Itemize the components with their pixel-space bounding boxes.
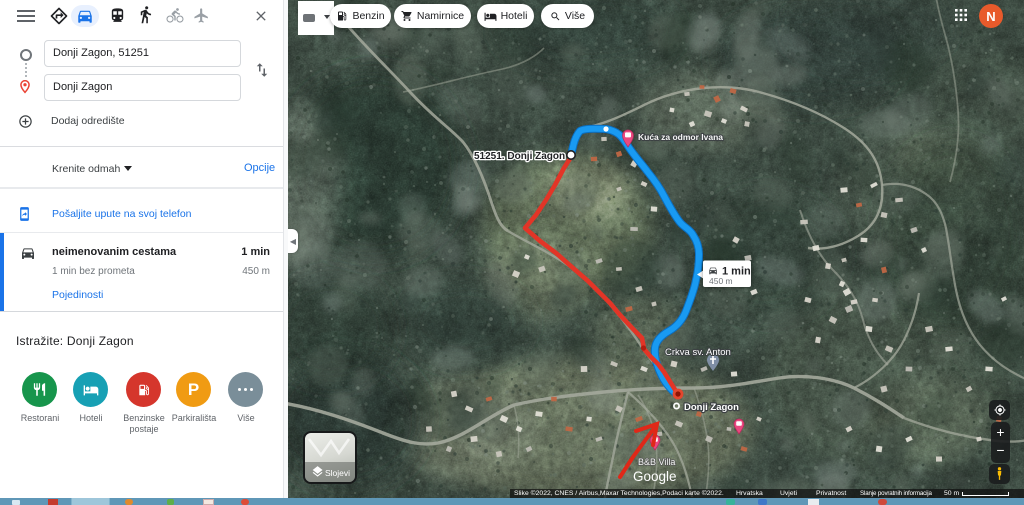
svg-text:Slojevi: Slojevi	[325, 468, 350, 478]
svg-text:Google: Google	[633, 469, 677, 484]
svg-text:51251. Donji Zagon: 51251. Donji Zagon	[474, 151, 565, 162]
svg-text:Donji Zagon: Donji Zagon	[684, 402, 739, 413]
svg-text:450 m: 450 m	[709, 276, 733, 286]
svg-text:Crkva sv. Anton: Crkva sv. Anton	[665, 347, 731, 358]
svg-text:B&B Villa: B&B Villa	[638, 457, 675, 467]
svg-text:Kuća za odmor Ivana: Kuća za odmor Ivana	[638, 132, 723, 142]
